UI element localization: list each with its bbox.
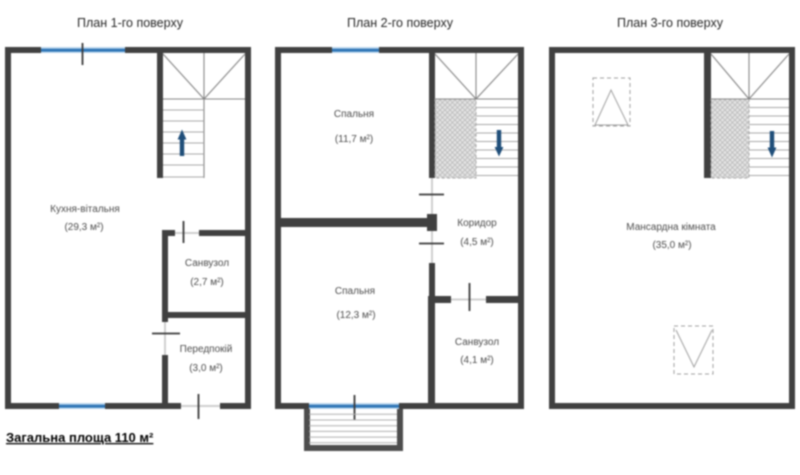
svg-text:(29,3 м²): (29,3 м²) <box>64 222 103 233</box>
svg-text:Кухня-вітальня: Кухня-вітальня <box>50 204 120 215</box>
svg-text:Спальня: Спальня <box>335 286 375 297</box>
svg-text:(11,7 м²): (11,7 м²) <box>335 134 373 145</box>
svg-text:(2,7 м²): (2,7 м²) <box>190 277 224 288</box>
svg-text:(35,0 м²): (35,0 м²) <box>652 240 691 251</box>
svg-text:(3,0 м²): (3,0 м²) <box>189 363 223 374</box>
svg-text:Загальна площа 110 м²: Загальна площа 110 м² <box>6 430 154 445</box>
svg-text:Спальня: Спальня <box>334 109 374 120</box>
svg-text:(4,1 м²): (4,1 м²) <box>460 355 494 366</box>
svg-text:Санвузол: Санвузол <box>185 258 229 269</box>
svg-text:Передпокій: Передпокій <box>180 344 233 355</box>
svg-text:План 2-го поверху: План 2-го поверху <box>347 16 454 30</box>
svg-text:(4,5 м²): (4,5 м²) <box>460 237 494 248</box>
svg-text:Коридор: Коридор <box>457 218 497 229</box>
svg-text:План 1-го поверху: План 1-го поверху <box>77 16 184 30</box>
svg-text:План 3-го поверху: План 3-го поверху <box>617 16 724 30</box>
svg-text:Мансардна кімната: Мансардна кімната <box>626 222 716 233</box>
svg-text:Санвузол: Санвузол <box>455 337 499 348</box>
svg-text:(12,3 м²): (12,3 м²) <box>336 310 375 321</box>
